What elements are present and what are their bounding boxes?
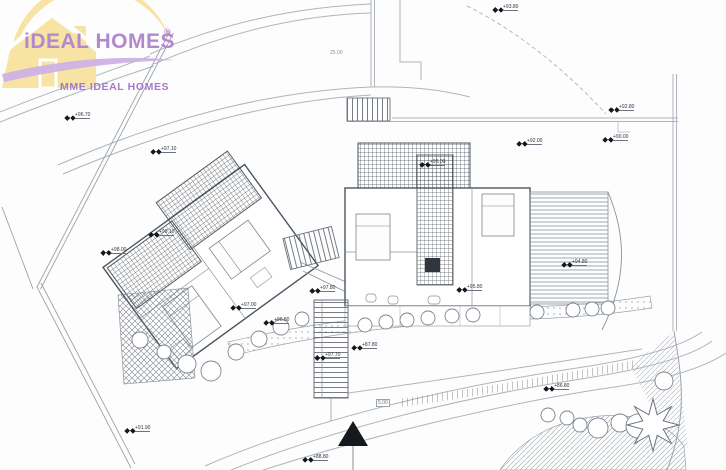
survey-point-icon	[314, 352, 325, 363]
elevation-marker: +97.70	[316, 354, 340, 362]
survey-point-icon	[492, 4, 503, 15]
survey-point-icon	[419, 159, 430, 170]
survey-point-icon	[516, 138, 527, 149]
ideal-homes-logo: iDEAL HOMES ® MME IDEAL HOMES	[0, 0, 190, 100]
elevation-marker: +92.00	[518, 140, 542, 148]
elevation-marker: +92.80	[610, 106, 634, 114]
survey-point-icon	[302, 454, 313, 465]
survey-point-icon	[602, 134, 613, 145]
survey-point-icon	[100, 247, 111, 258]
villa-b	[345, 143, 622, 330]
fireplace	[425, 258, 440, 272]
survey-point-icon	[608, 104, 619, 115]
survey-point-icon	[309, 285, 320, 296]
elevation-marker: +93.80	[494, 6, 518, 14]
brand-subtitle: MME IDEAL HOMES	[60, 81, 169, 93]
survey-point-icon	[263, 317, 274, 328]
elevation-marker: +88.80	[304, 456, 328, 464]
elevation-marker: +96.80	[265, 319, 289, 327]
elevation-marker: +97.80	[311, 287, 335, 295]
elevation-marker: +87.80	[353, 344, 377, 352]
elevation-marker: +99.10	[150, 231, 174, 239]
bed-icon	[356, 214, 390, 260]
survey-point-icon	[561, 259, 572, 270]
elevation-marker: +94.80	[563, 261, 587, 269]
dimension-label: 25.00	[330, 50, 343, 56]
elevation-marker: +95.80	[458, 286, 482, 294]
brand-name: iDEAL HOMES	[24, 30, 175, 54]
elevation-marker: +97.10	[152, 148, 176, 156]
elevation-marker: +86.80	[545, 385, 569, 393]
palm-tree-icon	[627, 399, 679, 451]
elevation-marker: +98.00	[102, 249, 126, 257]
survey-point-icon	[124, 425, 135, 436]
elevation-marker: +96.70	[66, 114, 90, 122]
survey-point-icon	[456, 284, 467, 295]
survey-point-icon	[351, 342, 362, 353]
registered-trademark: ®	[164, 27, 171, 37]
bed-icon	[482, 194, 514, 236]
elevation-marker: +96.00	[421, 161, 445, 169]
elevation-marker: +90.00	[604, 136, 628, 144]
dimension-label: 5.00	[376, 399, 390, 407]
north-arrow-icon	[338, 421, 368, 470]
elevation-marker: +91.90	[126, 427, 150, 435]
road-crosswalk-band	[400, 360, 638, 407]
survey-point-icon	[148, 229, 159, 240]
survey-point-icon	[150, 146, 161, 157]
villa-b-deck	[530, 192, 608, 304]
elevation-marker: +97.00	[232, 304, 256, 312]
stair-top-right	[347, 98, 390, 121]
survey-point-icon	[230, 302, 241, 313]
survey-point-icon	[543, 383, 554, 394]
survey-point-icon	[64, 112, 75, 123]
site-plan-canvas: iDEAL HOMES ® MME IDEAL HOMES +93.80 +96…	[0, 0, 726, 470]
